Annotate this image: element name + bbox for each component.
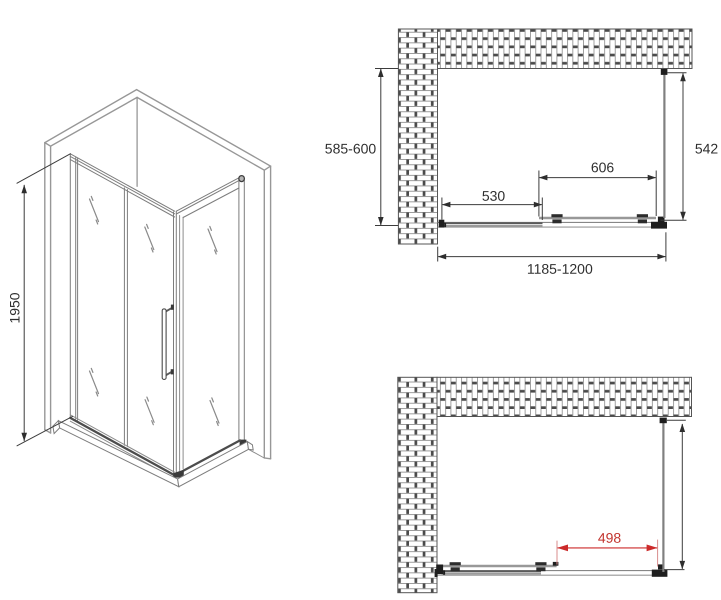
svg-text:542: 542 xyxy=(695,140,719,156)
svg-text:530: 530 xyxy=(482,188,506,204)
svg-text:1185-1200: 1185-1200 xyxy=(527,261,593,277)
svg-text:585-600: 585-600 xyxy=(325,140,377,156)
svg-text:498: 498 xyxy=(598,530,622,546)
svg-text:606: 606 xyxy=(591,159,615,175)
svg-text:1950: 1950 xyxy=(7,292,23,323)
